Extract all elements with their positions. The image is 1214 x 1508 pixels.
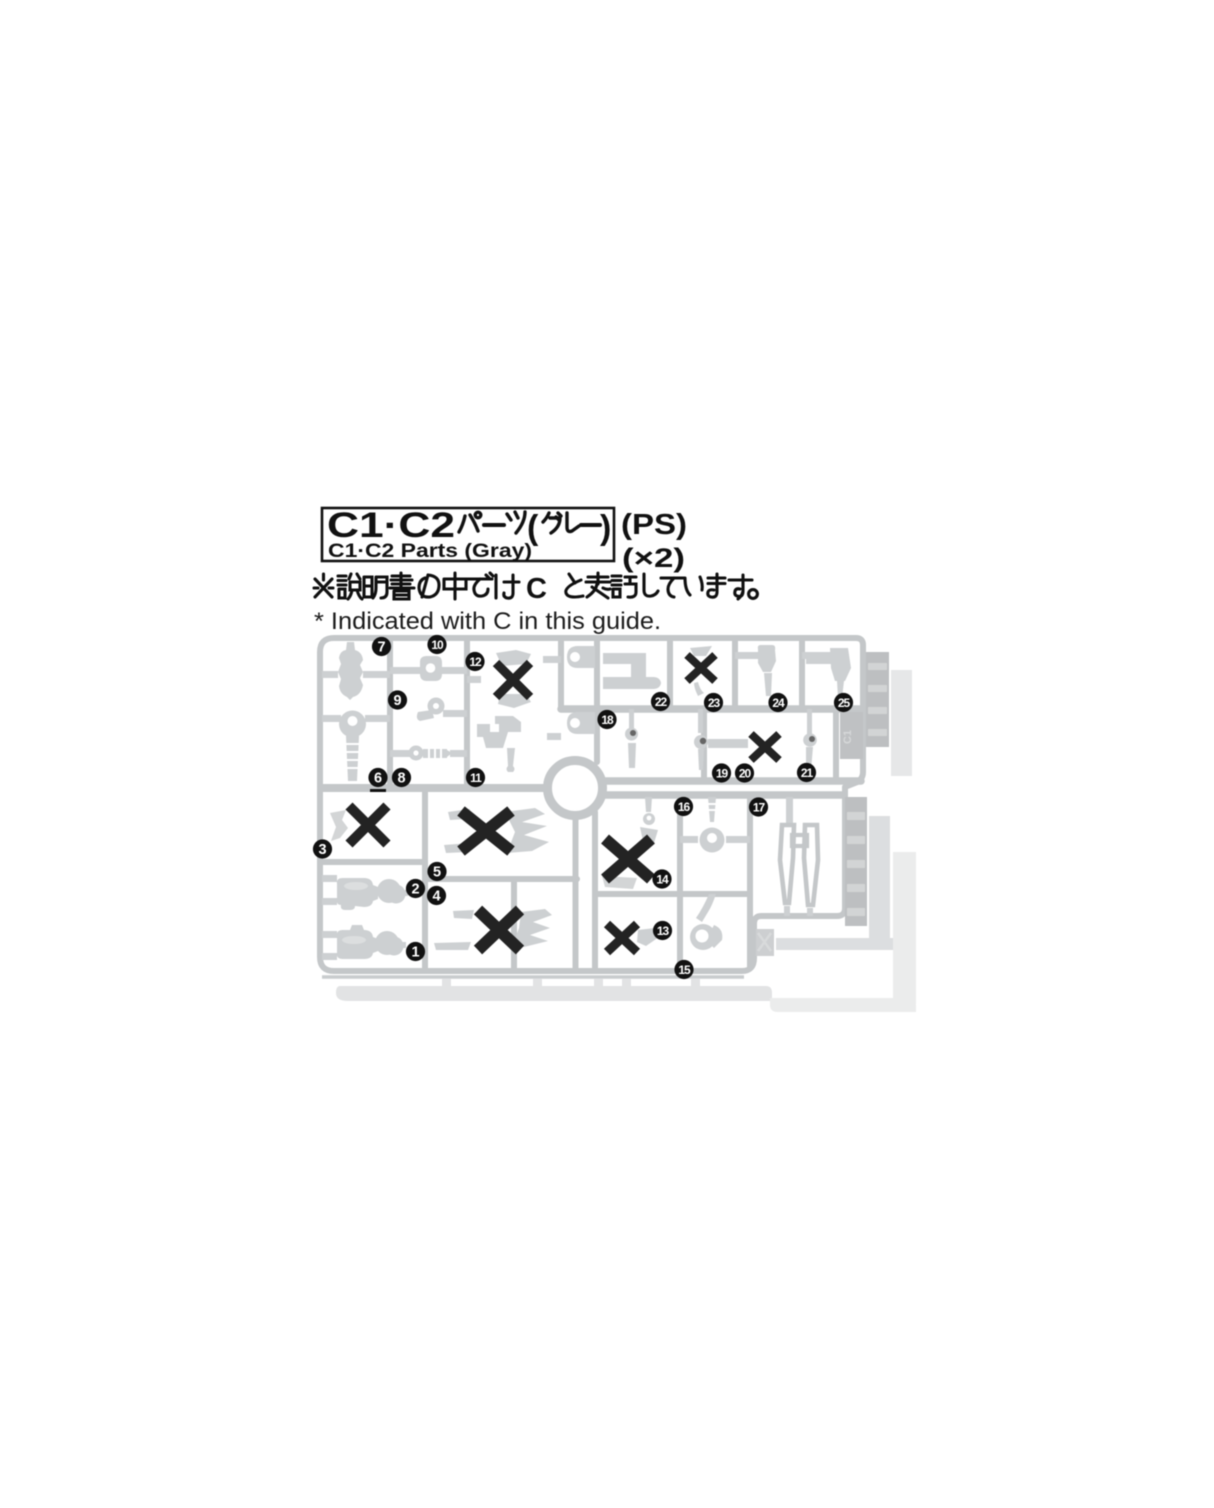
svg-text:17: 17 [753,801,766,815]
svg-text:8: 8 [397,771,405,787]
svg-text:(×2): (×2) [622,543,685,573]
svg-text:23: 23 [708,696,721,710]
svg-text:5: 5 [433,865,441,881]
svg-text:4: 4 [432,889,440,905]
svg-text:2: 2 [411,882,419,898]
svg-text:12: 12 [469,655,482,669]
svg-text:22: 22 [655,695,668,709]
svg-text:21: 21 [801,766,814,780]
svg-text:13: 13 [657,924,670,938]
svg-text:20: 20 [739,767,752,781]
svg-text:6: 6 [374,771,382,787]
svg-text:C1·C2 Parts (Gray): C1·C2 Parts (Gray) [328,540,532,562]
svg-text:19: 19 [716,767,729,781]
svg-text:11: 11 [470,771,482,785]
svg-text:7: 7 [377,640,385,656]
svg-text:9: 9 [393,693,401,709]
svg-text:25: 25 [838,696,851,710]
svg-text:16: 16 [678,800,691,814]
svg-text:15: 15 [678,963,691,977]
svg-text:C: C [526,573,547,605]
svg-text:14: 14 [656,873,669,887]
svg-text:3: 3 [318,842,326,858]
svg-text:10: 10 [431,638,444,652]
svg-text:(PS): (PS) [621,509,687,541]
svg-text:* Indicated with C in this gui: * Indicated with C in this guide. [314,608,661,635]
svg-text:): ) [600,509,611,547]
svg-text:24: 24 [772,696,785,710]
svg-text:18: 18 [601,713,614,727]
svg-text:C1: C1 [842,730,854,744]
svg-text:1: 1 [411,945,419,961]
